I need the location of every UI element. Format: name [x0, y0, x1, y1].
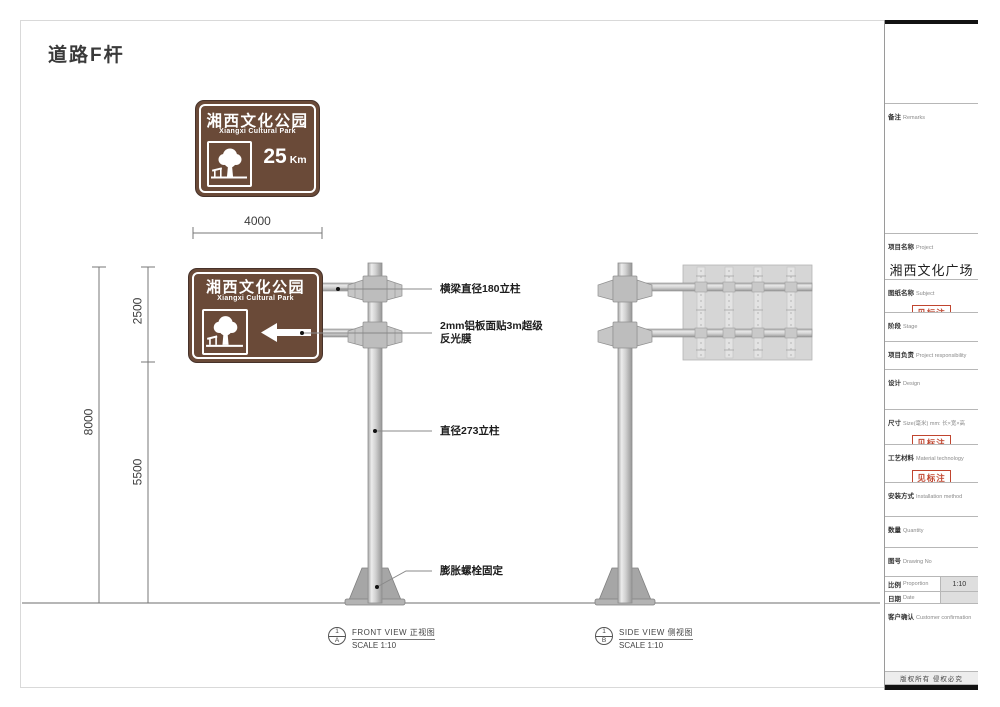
- tb-row-design: 设计Design: [885, 370, 978, 410]
- title-block-bottom-bar: [885, 685, 978, 690]
- left-arrow-icon: [261, 322, 311, 343]
- view-scale: SCALE 1:10: [352, 641, 435, 650]
- annotation-pole: 直径273立柱: [440, 425, 500, 438]
- side-view-label: 1 B SIDE VIEW 侧视图 SCALE 1:10: [595, 627, 693, 650]
- guide-sign-detail: 湘西文化公园 Xiangxi Cultural Park 25Km: [195, 100, 320, 197]
- drawing-sheet: 湘西文化公园 Xiangxi Cultural Park 25Km 湘西文化公园…: [0, 0, 1000, 707]
- see-note-stamp: 见标注: [912, 435, 951, 446]
- annotation-beam: 横梁直径180立柱: [440, 283, 521, 296]
- view-scale: SCALE 1:10: [619, 641, 693, 650]
- see-note-stamp: 见标注: [912, 305, 951, 314]
- tb-row-date: 日期Date: [885, 592, 978, 604]
- section-marker-icon: 1 A: [328, 627, 346, 645]
- page-title: 道路F杆: [48, 40, 125, 67]
- tb-row-logo: [885, 24, 978, 104]
- sign-title-cn: 湘西文化公园: [189, 276, 322, 297]
- annotation-film: 2mm铝板面贴3m超级 反光膜: [440, 320, 543, 346]
- tree-bench-icon: [209, 143, 249, 184]
- park-icon-box: [202, 309, 248, 355]
- tree-bench-icon: [204, 311, 245, 352]
- tb-row-material: 工艺材料Material technology 见标注: [885, 445, 978, 483]
- park-icon-box: [207, 141, 252, 187]
- sign-title-en: Xiangxi Cultural Park: [196, 128, 319, 135]
- tb-row-stage: 阶段Stage: [885, 313, 978, 342]
- front-view-label: 1 A FRONT VIEW 正视图 SCALE 1:10: [328, 627, 435, 650]
- section-marker-icon: 1 B: [595, 627, 613, 645]
- project-name: 湘西文化广场: [888, 260, 975, 279]
- tb-row-project: 项目名称Project 湘西文化广场: [885, 234, 978, 280]
- annotation-base: 膨胀螺栓固定: [440, 565, 503, 578]
- leader-lines: [0, 0, 1000, 707]
- tb-row-copyright: 版权所有 侵权必究: [885, 672, 978, 685]
- tb-row-remarks: 备注Remarks: [885, 104, 978, 234]
- tb-row-drawing-no: 图号Drawing No: [885, 548, 978, 577]
- sign-title-en: Xiangxi Cultural Park: [189, 295, 322, 302]
- tb-row-confirmation: 客户确认Customer confirmation: [885, 604, 978, 672]
- tb-row-size: 尺寸Size(毫米) mm: 长×宽×高 见标注: [885, 410, 978, 445]
- distance-label: 25Km: [254, 145, 316, 189]
- drawing-canvas: [0, 0, 1000, 707]
- tb-row-responsibility: 项目负责Project responsibility: [885, 342, 978, 370]
- see-note-stamp: 见标注: [912, 470, 951, 484]
- view-name: SIDE VIEW 侧视图: [619, 627, 693, 640]
- view-name: FRONT VIEW 正视图: [352, 627, 435, 640]
- scale-value: 1:10: [940, 577, 978, 591]
- dim-width: 4000: [193, 214, 322, 228]
- date-value: [940, 592, 978, 603]
- tb-row-quantity: 数量Quantity: [885, 517, 978, 548]
- tb-row-proportion: 比例Proportion 1:10: [885, 577, 978, 592]
- title-block: 备注Remarks 项目名称Project 湘西文化广场 图纸名称Subject…: [884, 20, 978, 690]
- tb-row-installation: 安装方式Installation method: [885, 483, 978, 517]
- tb-row-subject: 图纸名称Subject 见标注: [885, 280, 978, 313]
- guide-sign-front: 湘西文化公园 Xiangxi Cultural Park: [188, 268, 323, 363]
